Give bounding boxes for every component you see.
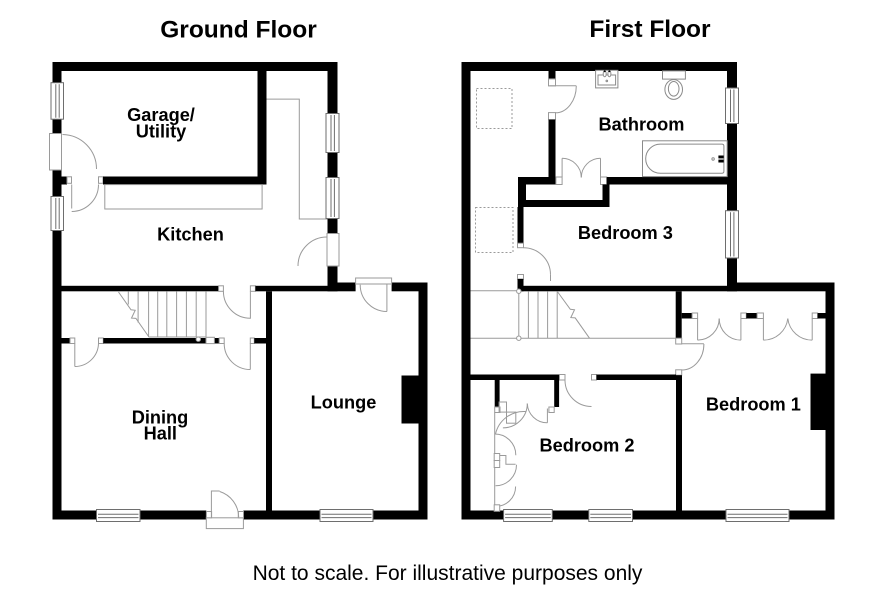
svg-text:Bedroom 2: Bedroom 2 xyxy=(540,436,635,456)
svg-text:Utility: Utility xyxy=(136,122,187,142)
svg-text:Hall: Hall xyxy=(144,424,177,444)
svg-text:Bathroom: Bathroom xyxy=(599,115,685,135)
svg-text:Lounge: Lounge xyxy=(311,393,377,413)
svg-text:Kitchen: Kitchen xyxy=(157,225,224,245)
svg-text:First Floor: First Floor xyxy=(589,16,711,43)
svg-text:Ground Floor: Ground Floor xyxy=(160,17,317,44)
svg-text:Not to scale. For illustrative: Not to scale. For illustrative purposes … xyxy=(253,562,643,585)
svg-text:Bedroom 3: Bedroom 3 xyxy=(578,223,673,243)
svg-text:Bedroom 1: Bedroom 1 xyxy=(706,395,801,415)
